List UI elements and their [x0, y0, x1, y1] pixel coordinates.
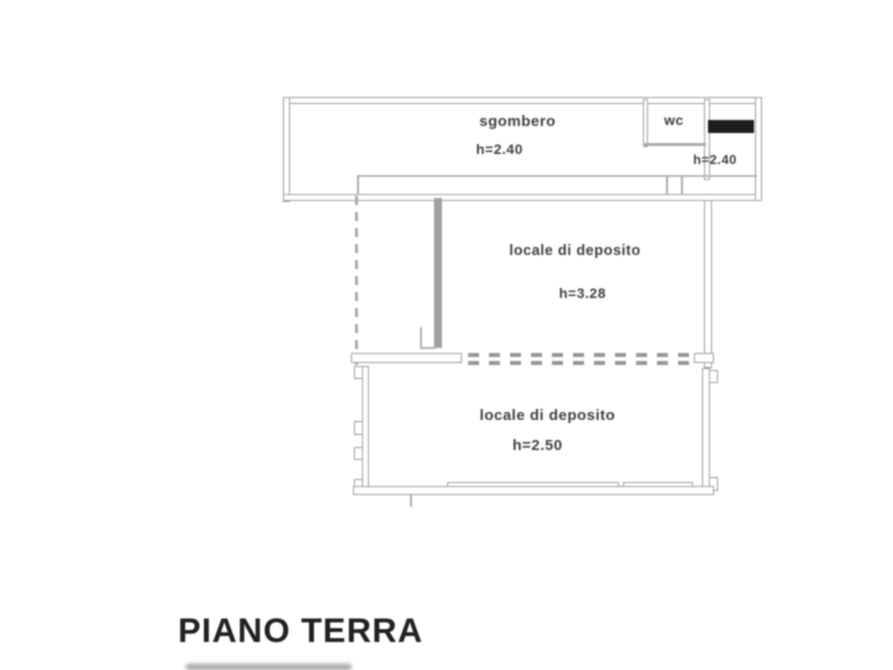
inner-edge-corner: [357, 176, 359, 195]
pilaster-right-1: [709, 370, 718, 383]
wall-middle-interior: [434, 198, 442, 348]
wall-top-room-left: [283, 97, 290, 202]
window-sill-1: [447, 482, 619, 487]
cutoff-text-smudge: [186, 664, 351, 670]
wall-wc-left: [643, 99, 648, 147]
wall-divider-dashed-bottom: [468, 361, 696, 365]
pilaster-left-2: [354, 421, 363, 435]
wall-divider-dashed-top: [468, 353, 696, 357]
room-height-deposito-1: h=3.28: [545, 285, 620, 301]
wall-middle-room-left-dashed: [355, 196, 358, 366]
door-swing-mark-h: [420, 347, 436, 349]
inner-edge-line: [357, 175, 757, 177]
room-height-wc: h=2.40: [684, 152, 746, 167]
wall-wc-bottom: [643, 143, 706, 146]
floor-title: PIANO TERRA: [178, 612, 423, 651]
wall-section-dark-bar: [708, 120, 754, 133]
floor-plan-canvas: sgombero h=2.40 wc h=2.40 locale di depo…: [0, 0, 893, 670]
room-height-sgombero: h=2.40: [462, 141, 537, 157]
wall-divider-solid: [351, 353, 462, 363]
wall-bottom-room-left: [362, 366, 369, 492]
room-label-wc: wc: [656, 112, 692, 128]
room-label-sgombero: sgombero: [455, 113, 580, 130]
wall-top-room-right: [755, 97, 762, 201]
pilaster-left-1: [354, 366, 363, 379]
wall-divider-right-end: [694, 353, 714, 363]
pilaster-left-3: [354, 447, 363, 460]
wall-middle-room-right: [704, 200, 712, 368]
room-height-deposito-2: h=2.50: [500, 437, 575, 454]
door-jamb-tick-1: [666, 176, 668, 195]
wall-wc-right: [704, 99, 710, 180]
room-label-deposito-2: locale di deposito: [465, 407, 630, 424]
door-swing-mark-v: [420, 327, 422, 349]
door-jamb-tick-2: [681, 176, 683, 195]
room-label-deposito-1: locale di deposito: [495, 243, 655, 259]
floor-plan-drawing: sgombero h=2.40 wc h=2.40 locale di depo…: [0, 0, 893, 670]
wall-top-room-top: [283, 97, 760, 104]
window-sill-2: [623, 482, 693, 487]
wall-bottom-room-bottom: [353, 486, 714, 495]
door-tick-bottom: [410, 495, 412, 507]
wall-bottom-room-right: [702, 368, 710, 492]
